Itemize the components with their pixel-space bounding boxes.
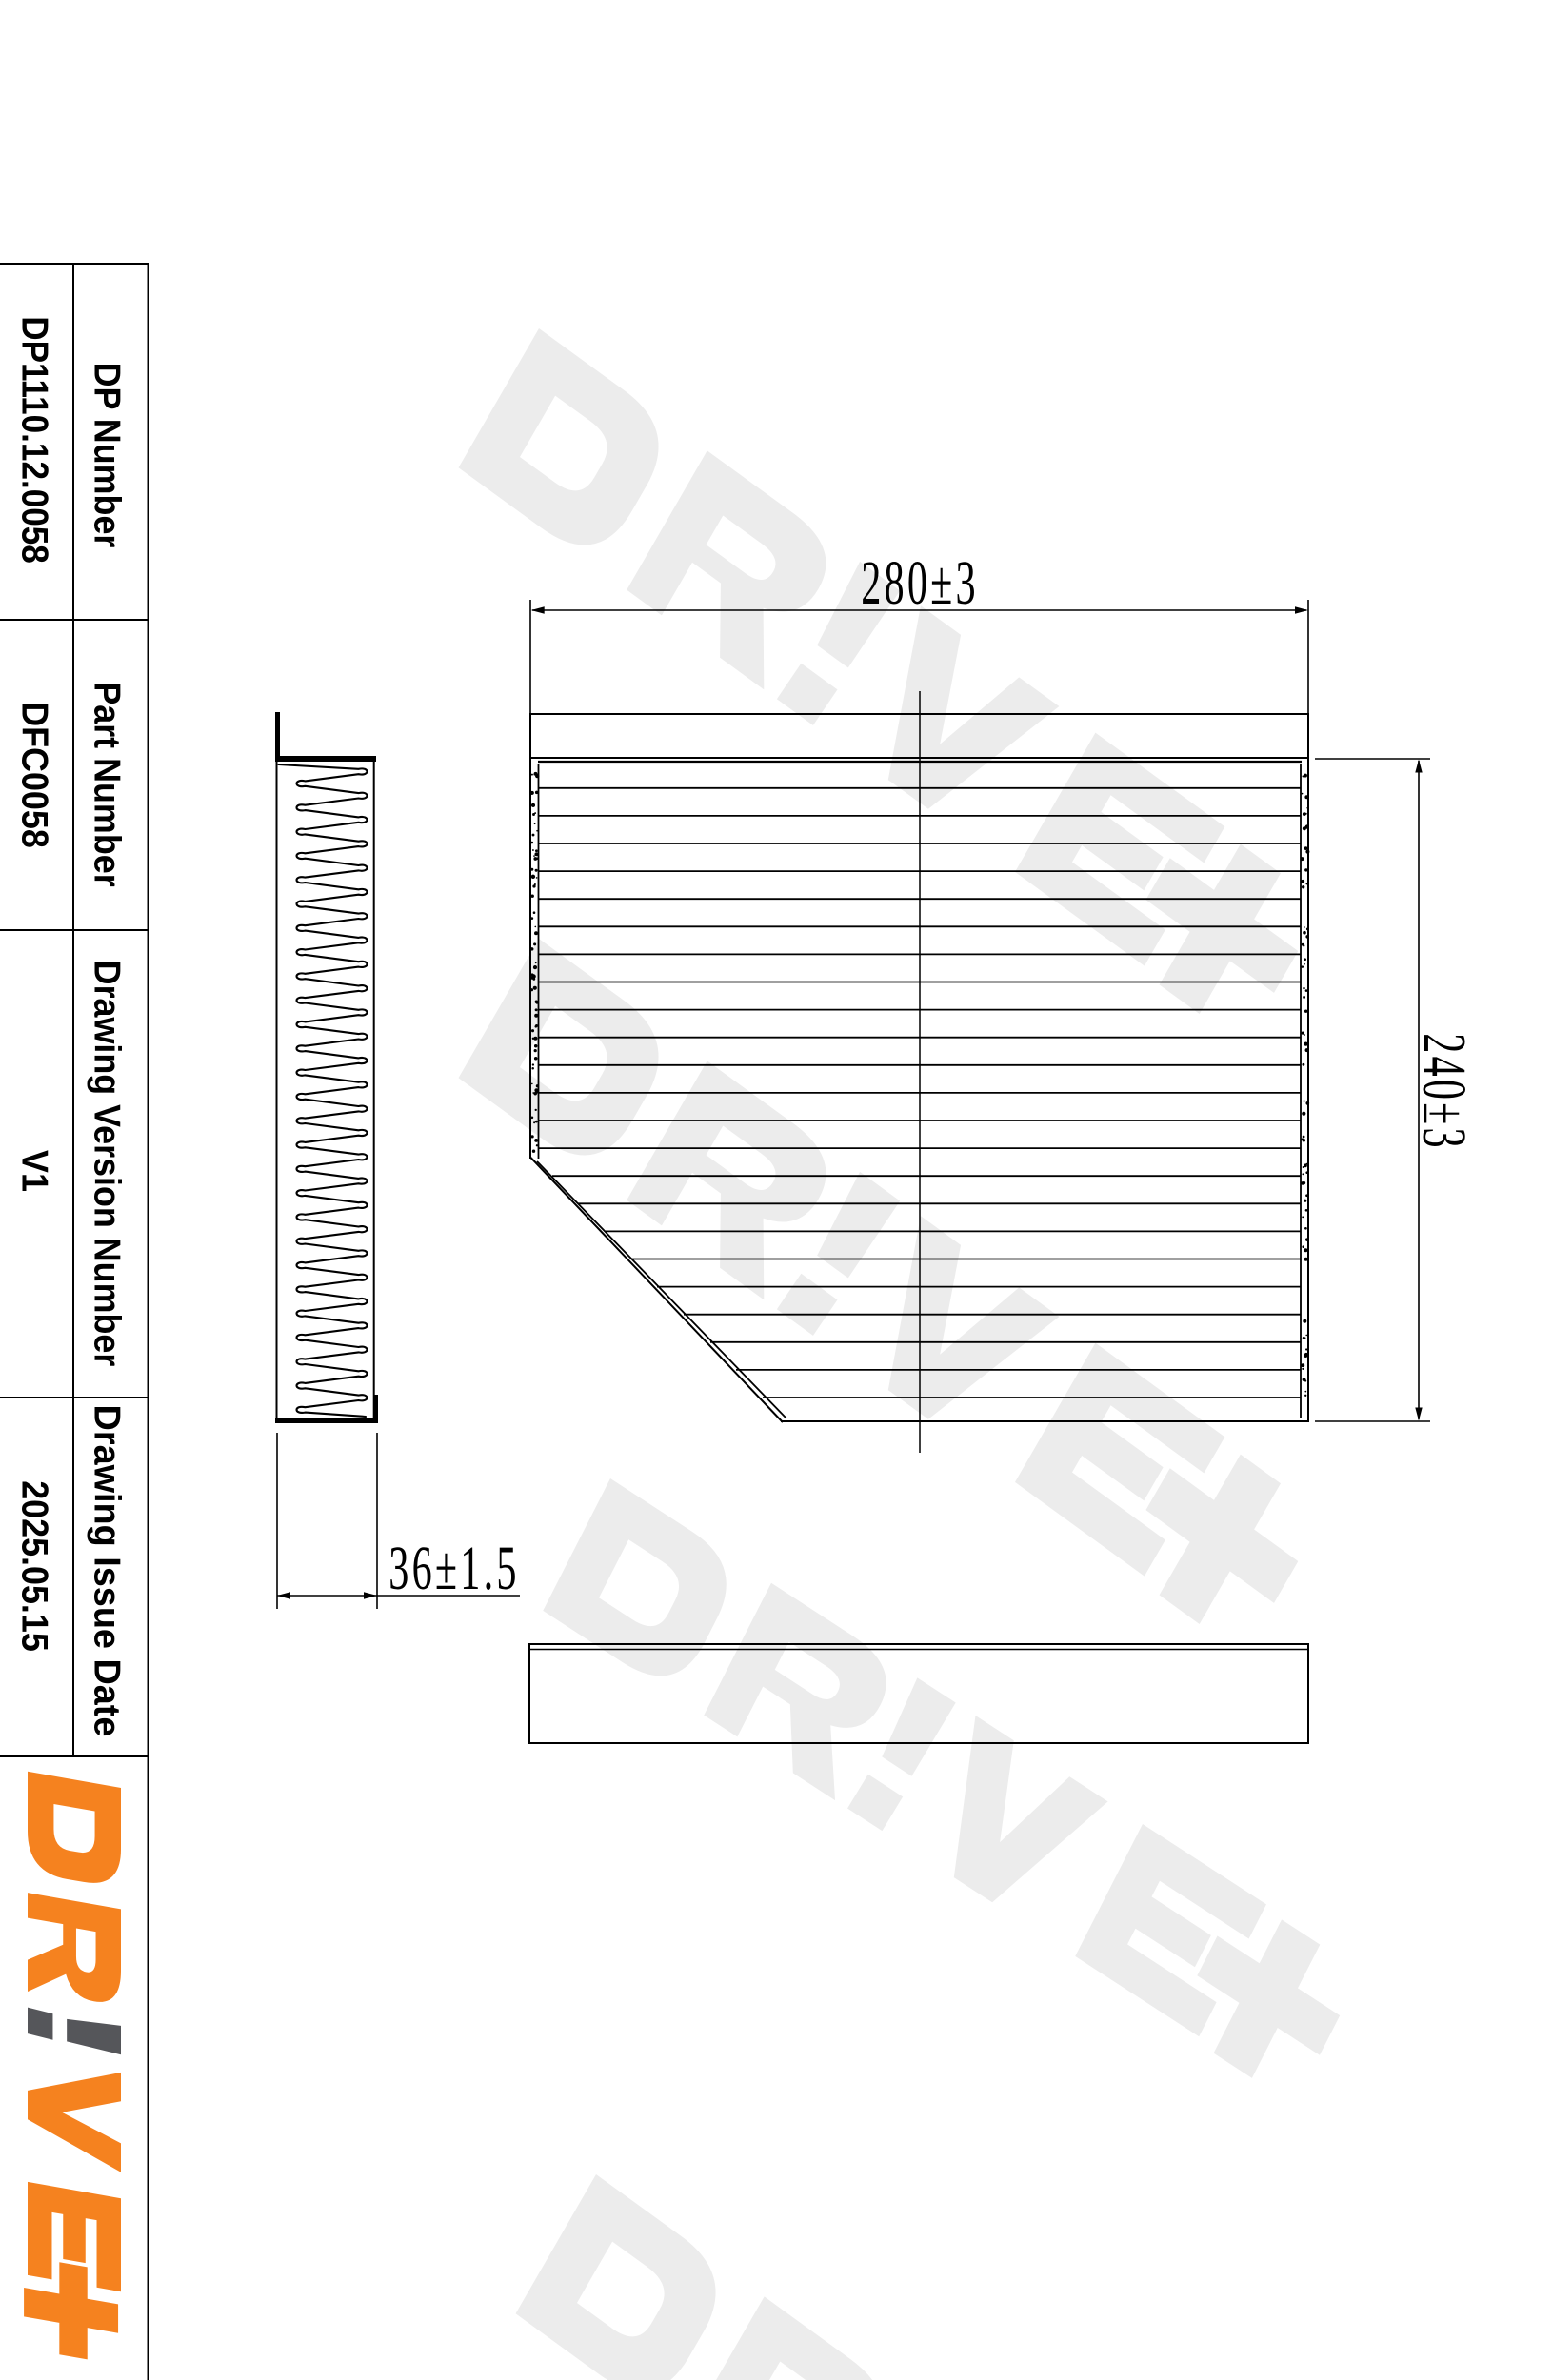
svg-text:DP Number: DP Number — [87, 363, 129, 548]
svg-text:280±3: 280±3 — [861, 548, 979, 618]
svg-text:240±3: 240±3 — [1410, 1033, 1480, 1151]
svg-text:DFC0058: DFC0058 — [14, 702, 56, 848]
svg-text:Part Number: Part Number — [87, 682, 129, 887]
svg-text:Drawing Version Number: Drawing Version Number — [87, 961, 129, 1367]
svg-text:DP1110.12.0058: DP1110.12.0058 — [14, 316, 56, 564]
svg-text:36±1.5: 36±1.5 — [388, 1534, 519, 1603]
svg-text:Drawing Issue Date: Drawing Issue Date — [86, 1405, 128, 1737]
svg-text:2025.05.15: 2025.05.15 — [14, 1480, 56, 1652]
svg-text:V1: V1 — [14, 1150, 56, 1192]
